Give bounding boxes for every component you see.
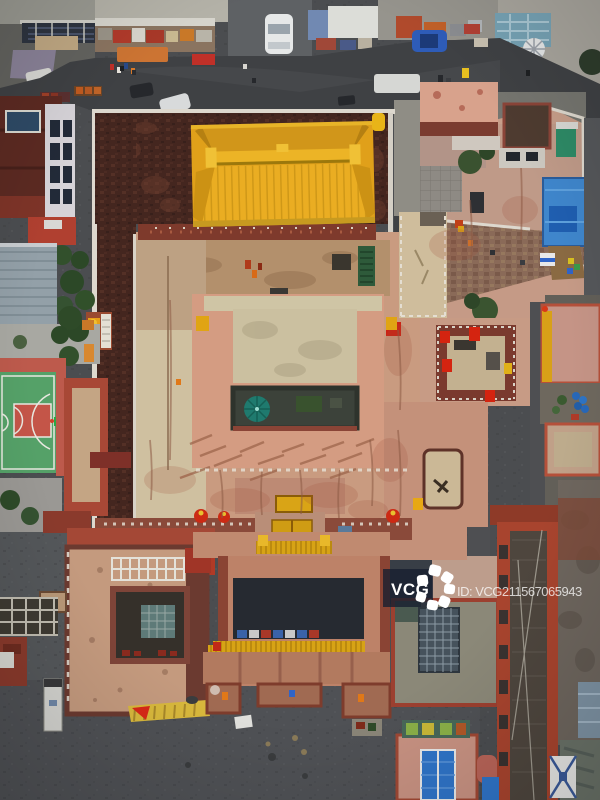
svg-text:ID: VCG211567065943: ID: VCG211567065943: [457, 584, 582, 599]
